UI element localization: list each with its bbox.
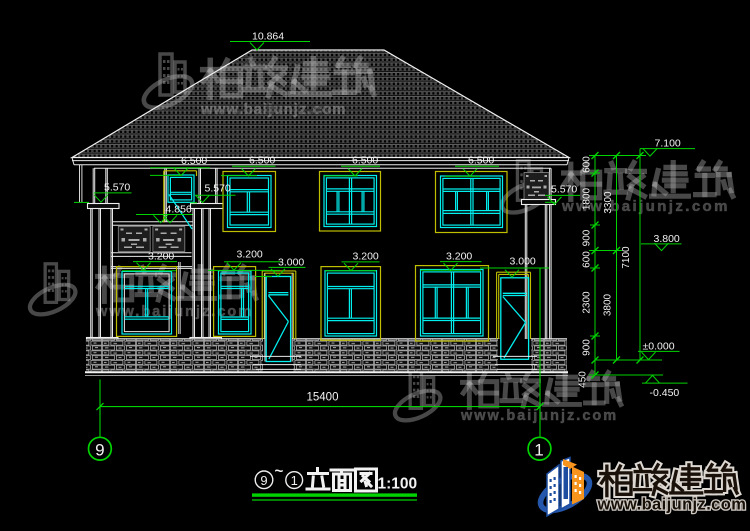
svg-text:3800: 3800	[603, 293, 614, 316]
svg-text:3.200: 3.200	[353, 251, 379, 263]
svg-text:2300: 2300	[582, 291, 593, 314]
svg-text:www.baijunjz.com: www.baijunjz.com	[460, 408, 618, 424]
svg-text:6.500: 6.500	[468, 155, 494, 167]
svg-text:www.baijunjz.com: www.baijunjz.com	[597, 496, 747, 514]
svg-text:3.800: 3.800	[654, 233, 680, 245]
svg-text:3300: 3300	[603, 191, 614, 214]
svg-text:900: 900	[582, 229, 593, 246]
svg-text:900: 900	[582, 339, 593, 356]
svg-text:4.856: 4.856	[166, 204, 192, 216]
svg-text:6.500: 6.500	[181, 155, 207, 167]
svg-text:1800: 1800	[582, 187, 593, 210]
svg-text:9: 9	[95, 441, 104, 460]
svg-text:±0.000: ±0.000	[643, 341, 675, 353]
svg-text:15400: 15400	[307, 392, 339, 404]
svg-text:7.100: 7.100	[655, 138, 681, 150]
svg-text:600: 600	[582, 156, 593, 173]
svg-text:-0.450: -0.450	[650, 387, 680, 399]
svg-text:www.baijunjz.com: www.baijunjz.com	[200, 101, 346, 118]
svg-text:5.570: 5.570	[551, 184, 577, 196]
svg-text:6.500: 6.500	[249, 155, 275, 167]
svg-text:1:100: 1:100	[378, 476, 418, 493]
svg-text:1: 1	[534, 441, 543, 460]
svg-text:7100: 7100	[621, 246, 632, 269]
svg-text:10.864: 10.864	[252, 31, 284, 43]
svg-text:3.000: 3.000	[510, 256, 536, 268]
svg-text:1: 1	[291, 473, 298, 488]
svg-text:450: 450	[578, 371, 589, 388]
svg-text:~: ~	[275, 463, 284, 480]
svg-text:600: 600	[582, 251, 593, 268]
svg-text:3.200: 3.200	[148, 251, 174, 263]
svg-text:3.200: 3.200	[237, 249, 263, 261]
svg-text:3.000: 3.000	[278, 257, 304, 269]
svg-text:3.200: 3.200	[446, 251, 472, 263]
svg-text:6.500: 6.500	[352, 155, 378, 167]
svg-text:5.570: 5.570	[104, 182, 130, 194]
svg-text:5.570: 5.570	[205, 183, 231, 195]
svg-text:9: 9	[260, 473, 267, 488]
